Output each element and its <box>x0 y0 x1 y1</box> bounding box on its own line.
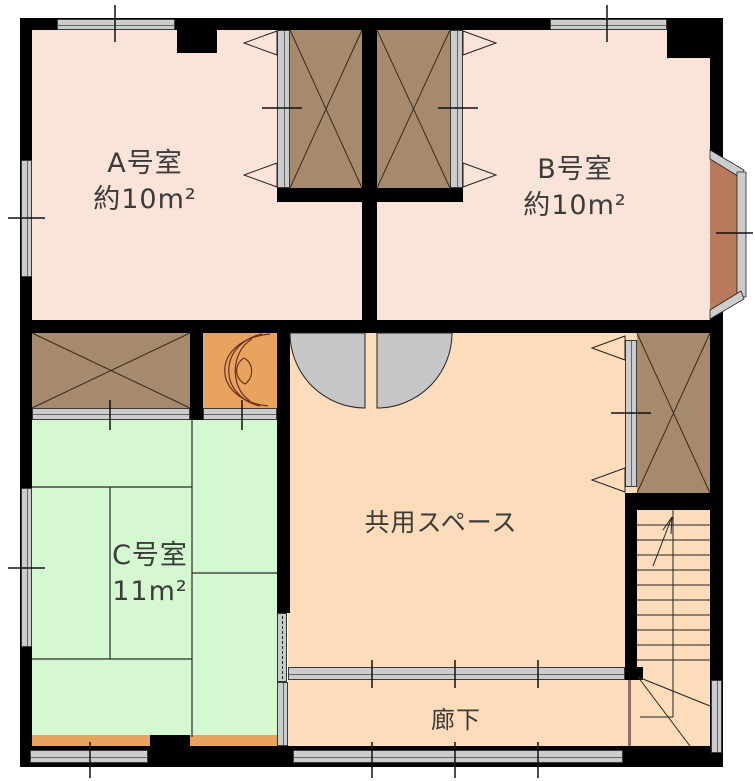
room-b-area: 約10m² <box>485 188 665 224</box>
room-c-label: C号室 11m² <box>60 538 240 609</box>
pillar-room-a <box>177 30 217 53</box>
room-a-name: A号室 <box>55 146 235 182</box>
room-a-area: 約10m² <box>55 182 235 218</box>
corridor-door-frame <box>628 680 631 746</box>
wall-c-shared-divider <box>277 320 290 613</box>
wall-ab-divider <box>362 18 377 333</box>
shared-space-label: 共用スペース <box>351 506 531 539</box>
wall-below-closet-b <box>377 188 463 202</box>
window-bottom-room-c <box>30 750 148 763</box>
partition-shared-corridor <box>288 667 625 680</box>
wall-left <box>20 18 32 767</box>
closet-room-b <box>377 30 450 188</box>
window-left-room-c <box>21 488 32 647</box>
closet-room-c <box>32 333 190 408</box>
wall-ledge-gap <box>150 735 190 746</box>
window-bottom-corridor <box>293 750 623 763</box>
wall-below-closet-a <box>277 188 362 202</box>
wood-floor-storage <box>203 333 277 408</box>
window-top-room-b <box>550 19 667 30</box>
wall-right <box>710 18 723 767</box>
closet-a-door-rail <box>277 30 290 188</box>
room-b-label: B号室 約10m² <box>485 152 665 223</box>
window-top-room-a <box>57 19 175 30</box>
wall-closet-c-wood <box>190 333 203 420</box>
closet-c-door-rail <box>32 408 190 420</box>
stairs-floor <box>637 510 710 680</box>
sliding-door-room-c <box>277 613 287 682</box>
wood-storage-door-rail <box>203 408 277 420</box>
closet-b-door-rail <box>450 30 463 188</box>
room-b-name: B号室 <box>485 152 665 188</box>
room-c-ledge-right <box>190 735 277 746</box>
window-right-stairs <box>711 680 722 753</box>
closet-room-a <box>290 30 362 188</box>
shared-closet-door-rail <box>625 340 637 487</box>
wall-under-rooms-ab <box>20 320 723 333</box>
window-corridor-west <box>277 682 288 746</box>
room-a-label: A号室 約10m² <box>55 146 235 217</box>
room-c-ledge-left <box>32 735 150 746</box>
pillar-room-b-corner <box>667 18 723 58</box>
closet-shared-space <box>637 333 710 493</box>
wall-partition-stub <box>625 667 643 680</box>
room-c-area: 11m² <box>60 574 240 610</box>
room-c-name: C号室 <box>60 538 240 574</box>
wall-below-shared-closet <box>625 493 710 510</box>
window-left-room-a <box>21 160 32 277</box>
corridor-label: 廊下 <box>406 705 506 737</box>
wall-stairs-left <box>625 510 637 680</box>
floor-plan: A号室 約10m² B号室 約10m² C号室 11m² 共用スペース 廊下 <box>0 0 755 781</box>
